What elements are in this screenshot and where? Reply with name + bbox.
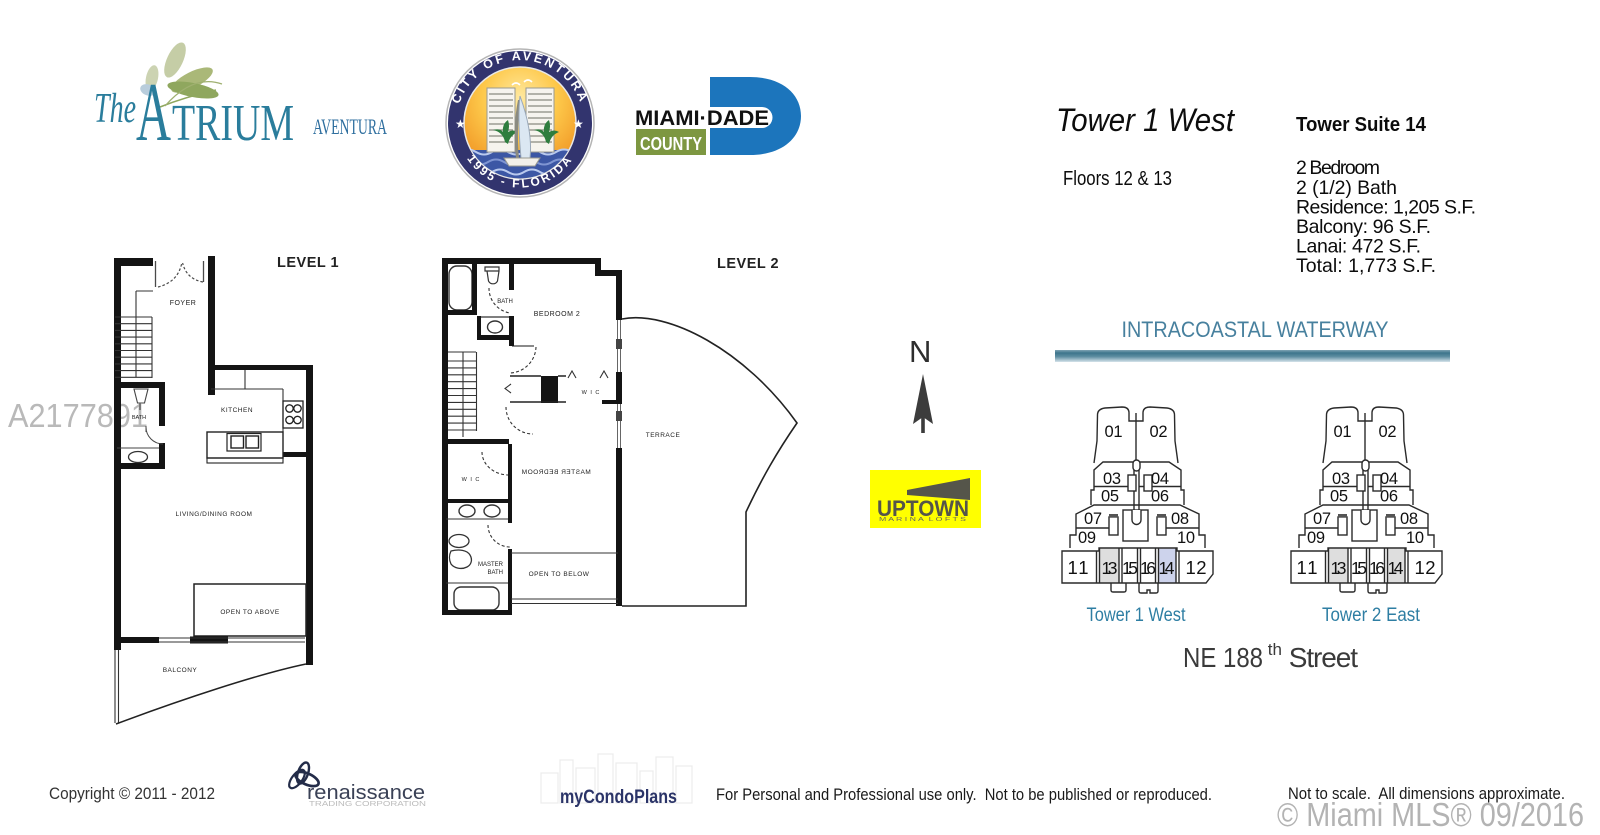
svg-text:N: N xyxy=(909,334,931,369)
svg-text:Tower 1 West: Tower 1 West xyxy=(1056,102,1235,138)
svg-text:Tower 2 East: Tower 2 East xyxy=(1322,605,1421,626)
svg-text:03: 03 xyxy=(1332,470,1350,488)
svg-text:09: 09 xyxy=(1307,529,1325,547)
svg-text:2 Bedroom: 2 Bedroom xyxy=(1296,157,1380,179)
svg-text:16: 16 xyxy=(1140,558,1156,578)
svg-text:14: 14 xyxy=(1388,558,1404,578)
svg-text:W I C: W I C xyxy=(582,390,601,396)
svg-text:06: 06 xyxy=(1380,488,1398,506)
svg-text:MIAMI·DADE: MIAMI·DADE xyxy=(635,107,769,130)
svg-text:LEVEL 2: LEVEL 2 xyxy=(717,256,779,272)
svg-text:05: 05 xyxy=(1330,488,1348,506)
svg-text:01: 01 xyxy=(1334,423,1352,441)
svg-text:BEDROOM 2: BEDROOM 2 xyxy=(534,311,581,318)
svg-text:15: 15 xyxy=(1351,558,1367,578)
svg-text:14: 14 xyxy=(1159,558,1175,578)
svg-text:M A R I N A L O F T S: M A R I N A L O F T S xyxy=(879,517,967,523)
svg-text:03: 03 xyxy=(1103,470,1121,488)
svg-text:© Miami MLS® 09/2016: © Miami MLS® 09/2016 xyxy=(1277,796,1584,833)
svg-text:BATH: BATH xyxy=(497,299,513,305)
svg-text:BALCONY: BALCONY xyxy=(163,667,198,674)
svg-text:02: 02 xyxy=(1150,423,1168,441)
svg-text:NE 188 th Street: NE 188 th Street xyxy=(1183,640,1358,673)
svg-text:MASTER BEDROOM: MASTER BEDROOM xyxy=(521,469,590,476)
svg-text:The: The xyxy=(94,86,136,132)
svg-text:BATH: BATH xyxy=(132,415,146,421)
svg-text:06: 06 xyxy=(1151,488,1169,506)
svg-text:08: 08 xyxy=(1400,510,1418,528)
svg-text:W I C: W I C xyxy=(462,477,481,483)
svg-text:10: 10 xyxy=(1177,529,1195,547)
svg-text:Copyright © 2011 - 2012: Copyright © 2011 - 2012 xyxy=(49,784,215,803)
svg-text:A: A xyxy=(136,66,171,159)
svg-text:04: 04 xyxy=(1151,470,1169,488)
svg-text:TRADING CORPORATION: TRADING CORPORATION xyxy=(309,801,426,808)
svg-text:LEVEL 1: LEVEL 1 xyxy=(277,255,339,271)
svg-text:A2177891: A2177891 xyxy=(8,397,148,434)
svg-text:myCondoPlans: myCondoPlans xyxy=(560,786,677,808)
svg-text:MASTER: MASTER xyxy=(478,562,504,568)
svg-text:TERRACE: TERRACE xyxy=(646,432,681,439)
svg-text:11: 11 xyxy=(1068,557,1089,578)
svg-text:13: 13 xyxy=(1331,558,1347,578)
svg-text:16: 16 xyxy=(1369,558,1385,578)
svg-text:13: 13 xyxy=(1102,558,1118,578)
svg-text:INTRACOASTAL WATERWAY: INTRACOASTAL WATERWAY xyxy=(1122,317,1389,342)
svg-text:AVENTURA: AVENTURA xyxy=(313,114,387,139)
svg-text:Total: 1,773 S.F.: Total: 1,773 S.F. xyxy=(1296,255,1436,277)
svg-text:01: 01 xyxy=(1105,423,1123,441)
svg-text:KITCHEN: KITCHEN xyxy=(221,407,253,414)
svg-text:FOYER: FOYER xyxy=(170,300,197,307)
svg-text:★: ★ xyxy=(573,117,584,131)
svg-text:12: 12 xyxy=(1186,557,1207,578)
svg-text:BATH: BATH xyxy=(487,570,503,576)
svg-text:COUNTY: COUNTY xyxy=(640,134,702,154)
svg-text:07: 07 xyxy=(1084,510,1102,528)
svg-text:Tower 1 West: Tower 1 West xyxy=(1087,605,1187,626)
svg-text:11: 11 xyxy=(1297,557,1318,578)
svg-text:OPEN TO ABOVE: OPEN TO ABOVE xyxy=(220,609,280,616)
svg-text:05: 05 xyxy=(1101,488,1119,506)
svg-text:04: 04 xyxy=(1380,470,1398,488)
svg-text:LIVING/DINING ROOM: LIVING/DINING ROOM xyxy=(176,511,253,518)
svg-text:For Personal and Professional: For Personal and Professional use only. … xyxy=(716,785,1212,804)
svg-text:12: 12 xyxy=(1415,557,1436,578)
svg-text:★: ★ xyxy=(455,117,466,131)
svg-text:TRIUM: TRIUM xyxy=(172,95,294,152)
svg-text:15: 15 xyxy=(1122,558,1138,578)
svg-text:Floors 12 & 13: Floors 12 & 13 xyxy=(1063,167,1172,190)
svg-text:07: 07 xyxy=(1313,510,1331,528)
svg-text:Tower Suite 14: Tower Suite 14 xyxy=(1296,113,1427,136)
svg-text:02: 02 xyxy=(1379,423,1397,441)
svg-text:09: 09 xyxy=(1078,529,1096,547)
svg-text:08: 08 xyxy=(1171,510,1189,528)
svg-text:10: 10 xyxy=(1406,529,1424,547)
svg-text:OPEN TO BELOW: OPEN TO BELOW xyxy=(529,571,590,578)
